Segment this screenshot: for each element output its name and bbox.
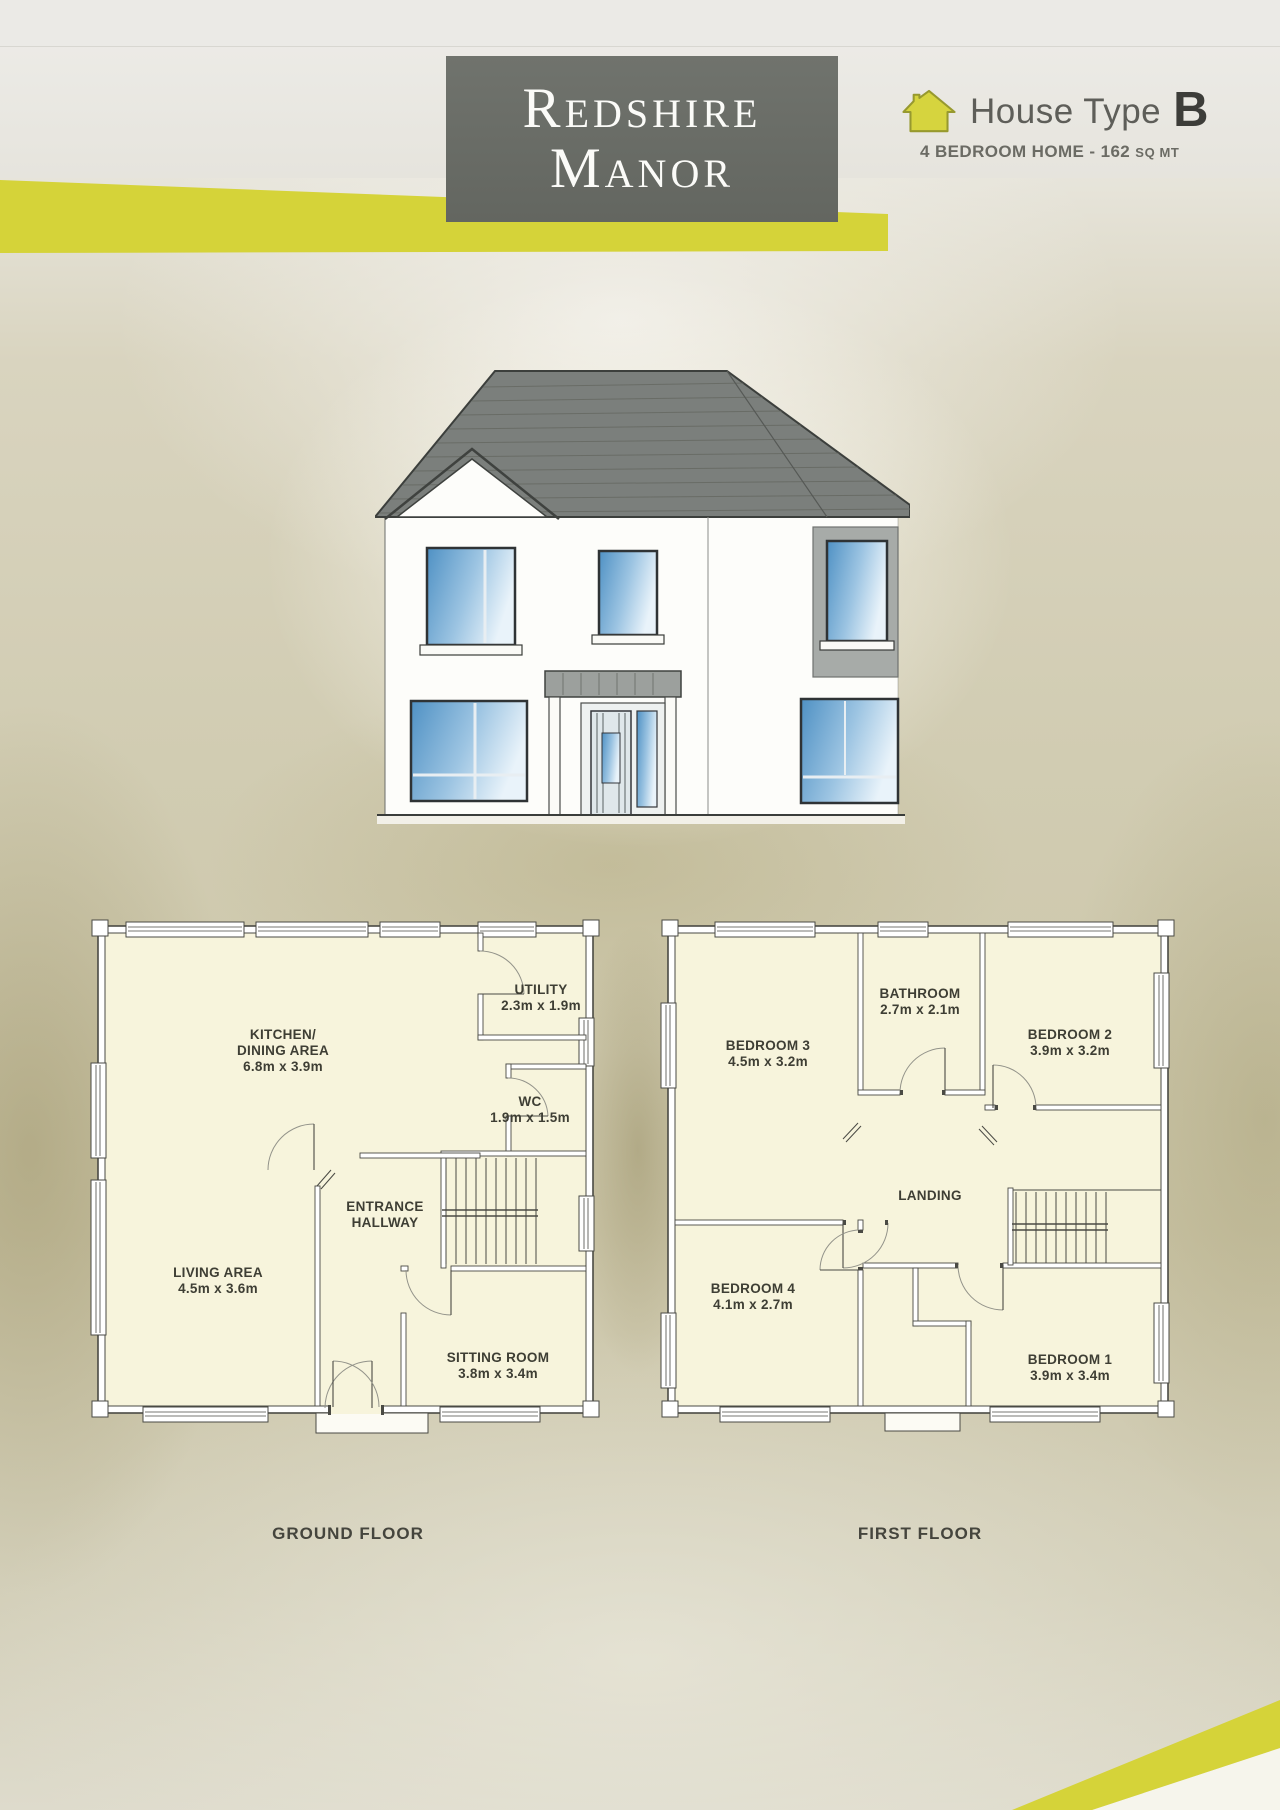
bedroom4-dims: 4.1m x 2.7m	[713, 1297, 793, 1312]
hallway-label: ENTRANCE	[346, 1199, 423, 1214]
title-box: Redshire Manor	[446, 56, 838, 222]
porch-slab	[316, 1413, 428, 1433]
upper-window-right	[820, 541, 894, 650]
house-type-block: House Type B 4 BEDROOM HOME - 162 SQ MT	[900, 84, 1240, 174]
first-floor-plan: BEDROOM 3 4.5m x 3.2m BATHROOM 2.7m x 2.…	[660, 918, 1180, 1458]
title-line-2: Manor	[550, 140, 734, 198]
subtitle-value: 162	[1101, 142, 1131, 161]
living-dims: 4.5m x 3.6m	[178, 1281, 258, 1296]
corner-pillar	[662, 1401, 678, 1417]
corner-pillar	[1158, 1401, 1174, 1417]
front-door-gap	[331, 1404, 381, 1414]
landing-label: LANDING	[898, 1188, 962, 1203]
door-sidelight	[637, 711, 657, 807]
kitchen-label2: DINING AREA	[237, 1043, 329, 1058]
house-base	[377, 815, 905, 824]
ground-floor-plan: KITCHEN/ DINING AREA 6.8m x 3.9m UTILITY…	[88, 918, 608, 1458]
corner-pillar	[92, 920, 108, 936]
corner-pillar	[1158, 920, 1174, 936]
corner-pillar	[662, 920, 678, 936]
utility-dims: 2.3m x 1.9m	[501, 998, 581, 1013]
bedroom2-dims: 3.9m x 3.2m	[1030, 1043, 1110, 1058]
window-sill	[592, 635, 664, 644]
house-type-label: House Type	[970, 92, 1161, 132]
house-type-value: B	[1173, 82, 1208, 138]
upper-window-left	[420, 548, 522, 655]
title-line-1: Redshire	[523, 80, 762, 138]
wc-label: WC	[518, 1094, 541, 1109]
bedroom4-label: BEDROOM 4	[711, 1281, 796, 1296]
bathroom-dims: 2.7m x 2.1m	[880, 1002, 960, 1017]
porch-post-right	[665, 697, 676, 815]
house-type-subtitle: 4 BEDROOM HOME - 162 SQ MT	[920, 142, 1240, 162]
bedroom1-dims: 3.9m x 3.4m	[1030, 1368, 1110, 1383]
window-sill	[820, 641, 894, 650]
hallway-label2: HALLWAY	[352, 1215, 419, 1230]
ground-floor-caption: GROUND FLOOR	[228, 1524, 468, 1544]
bedroom3-dims: 4.5m x 3.2m	[728, 1054, 808, 1069]
subtitle-prefix: 4 BEDROOM HOME	[920, 142, 1084, 161]
wc-dims: 1.9m x 1.5m	[490, 1110, 570, 1125]
living-label: LIVING AREA	[173, 1265, 263, 1280]
window-sill	[420, 645, 522, 655]
corner-pillar	[92, 1401, 108, 1417]
bay-protrusion	[885, 1413, 960, 1431]
utility-label: UTILITY	[514, 982, 567, 997]
corner-pillar	[583, 920, 599, 936]
front-door	[591, 711, 631, 815]
kitchen-dims: 6.8m x 3.9m	[243, 1059, 323, 1074]
porch-canopy	[545, 671, 681, 697]
house-elevation	[375, 345, 910, 825]
ground-window-left	[411, 701, 527, 801]
ground-window-right	[801, 699, 898, 803]
subtitle-separator: -	[1089, 142, 1095, 161]
bedroom3-label: BEDROOM 3	[726, 1038, 811, 1053]
upper-window-mid	[592, 551, 664, 644]
house-icon	[900, 89, 958, 135]
first-floor-caption: FIRST FLOOR	[800, 1524, 1040, 1544]
bedroom1-label: BEDROOM 1	[1028, 1352, 1113, 1367]
sitting-dims: 3.8m x 3.4m	[458, 1366, 538, 1381]
brochure-page: Redshire Manor House Type B 4 BEDROOM HO…	[0, 0, 1280, 1810]
kitchen-label: KITCHEN/	[250, 1027, 316, 1042]
corner-pillar	[583, 1401, 599, 1417]
accent-bands	[0, 0, 1280, 1810]
bathroom-label: BATHROOM	[880, 986, 961, 1001]
porch-post-left	[549, 697, 560, 815]
sitting-label: SITTING ROOM	[447, 1350, 550, 1365]
bedroom2-label: BEDROOM 2	[1028, 1027, 1112, 1042]
subtitle-unit: SQ MT	[1135, 145, 1179, 160]
